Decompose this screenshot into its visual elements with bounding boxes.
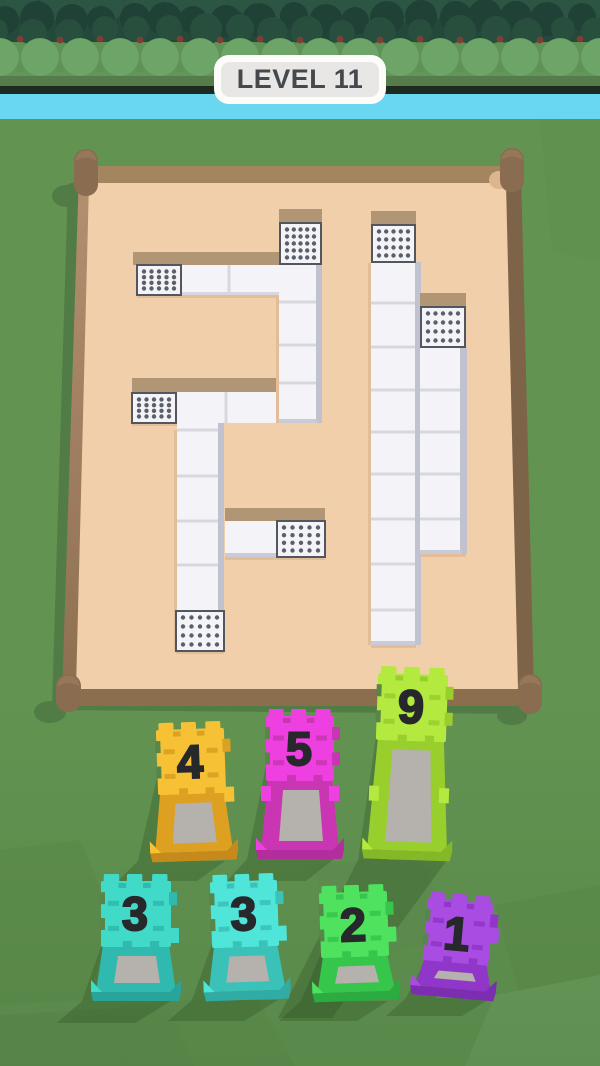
svg-text:LEVEL 11: LEVEL 11 <box>237 64 364 94</box>
svg-text:9: 9 <box>397 680 425 734</box>
svg-text:1: 1 <box>442 906 473 961</box>
svg-text:5: 5 <box>286 722 312 775</box>
svg-text:2: 2 <box>339 898 367 952</box>
svg-text:4: 4 <box>176 735 204 789</box>
svg-text:3: 3 <box>122 887 148 940</box>
svg-text:3: 3 <box>229 887 257 941</box>
